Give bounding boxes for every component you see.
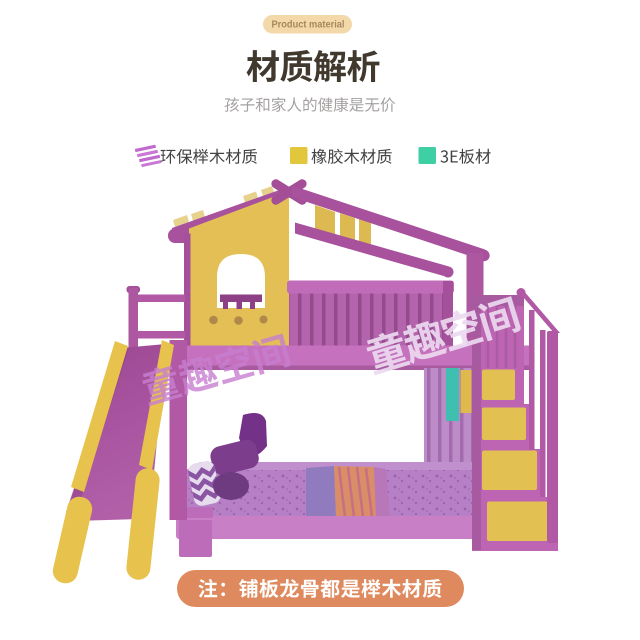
svg-text:Product material: Product material: [272, 19, 345, 31]
